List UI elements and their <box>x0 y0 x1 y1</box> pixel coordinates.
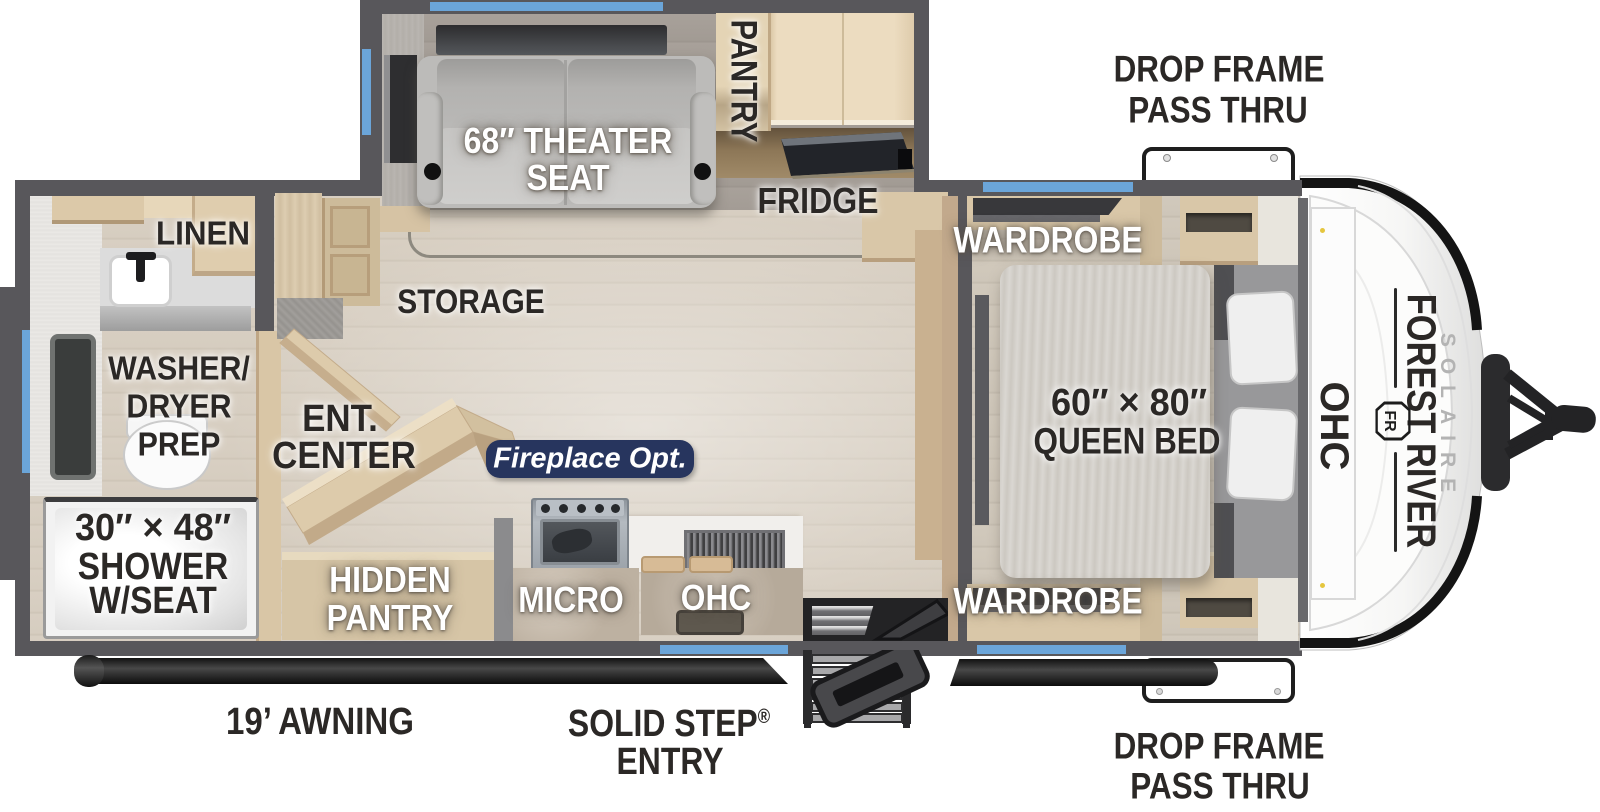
svg-text:FR: FR <box>1381 410 1398 432</box>
